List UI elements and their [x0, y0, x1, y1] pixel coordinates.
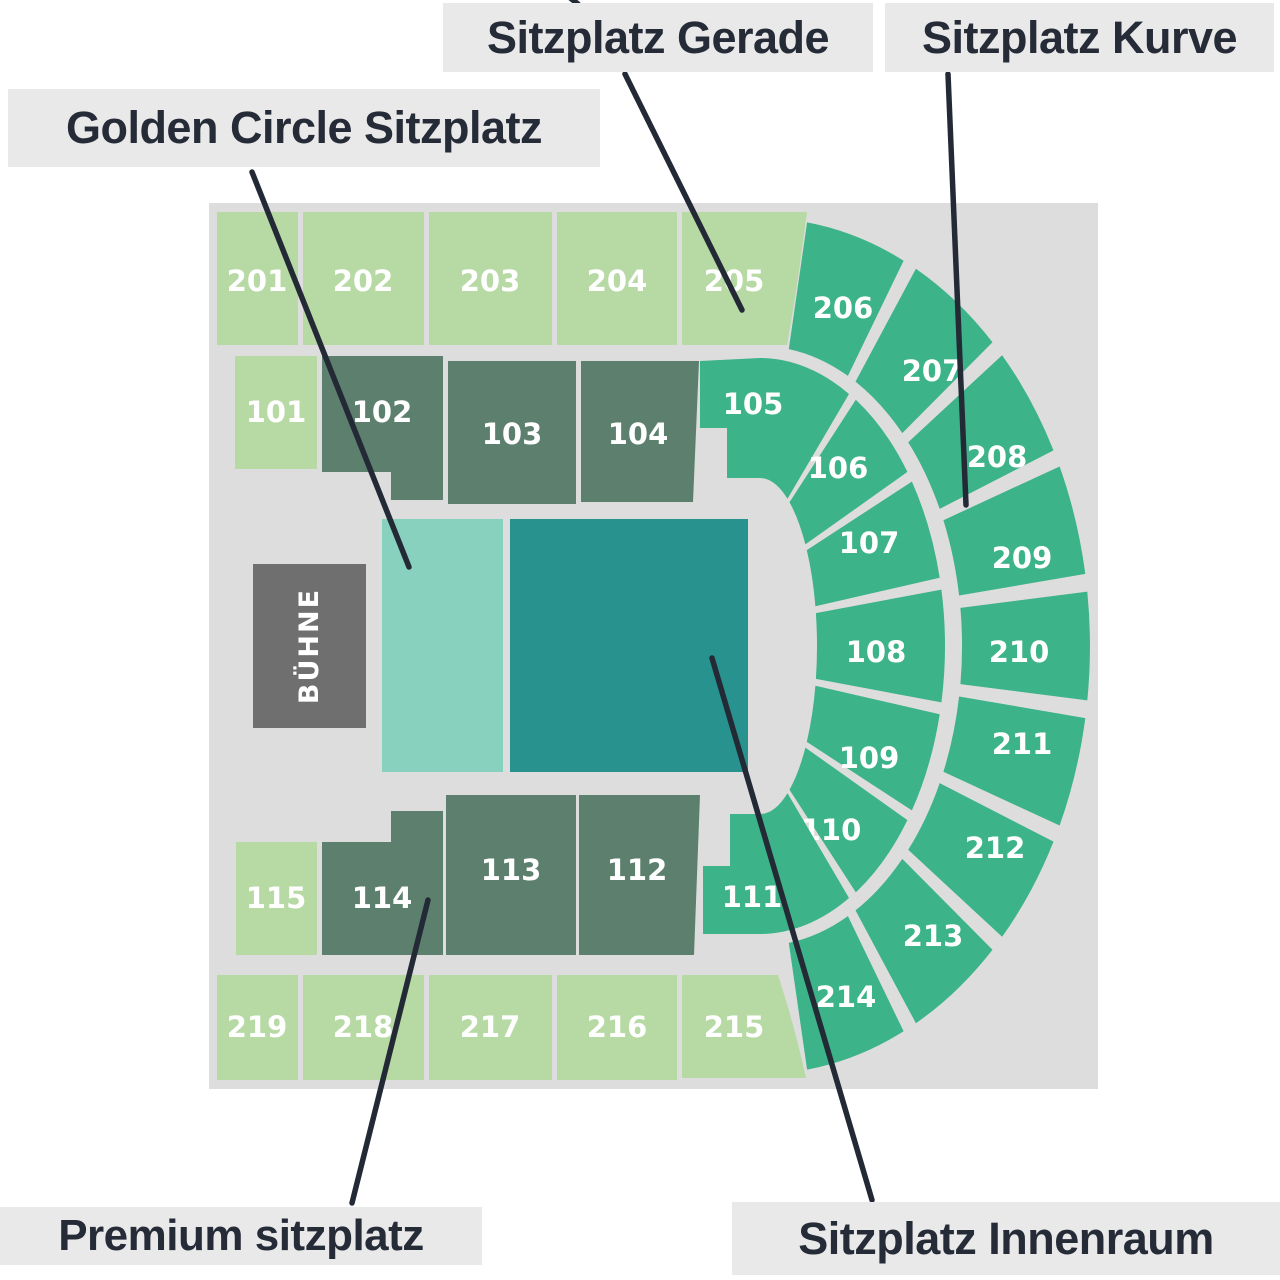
section-113-label: 113 — [481, 853, 542, 887]
section-209-label: 209 — [992, 541, 1053, 575]
section-103-label: 103 — [482, 417, 543, 451]
section-214-label: 214 — [816, 980, 877, 1014]
section-215-label: 215 — [704, 1010, 765, 1044]
stage-layer: BÜHNE — [253, 564, 366, 728]
section-206-label: 206 — [813, 291, 874, 325]
venue-map: 2012022032042052062072082092102112122132… — [0, 0, 1280, 1280]
section-202-label: 202 — [333, 264, 394, 298]
section-208-label: 208 — [967, 440, 1028, 474]
section-108-label: 108 — [846, 635, 907, 669]
section-219-label: 219 — [227, 1010, 288, 1044]
section-211-label: 211 — [992, 727, 1053, 761]
section-218-label: 218 — [333, 1010, 394, 1044]
section-106-label: 106 — [808, 451, 869, 485]
section-109-label: 109 — [839, 741, 900, 775]
section-204-label: 204 — [587, 264, 648, 298]
section-102-label: 102 — [352, 395, 413, 429]
section-201-label: 201 — [227, 264, 288, 298]
section-107-label: 107 — [839, 526, 900, 560]
section-104-label: 104 — [608, 417, 669, 451]
section-105-label: 105 — [723, 387, 784, 421]
section-innenraum[interactable] — [510, 519, 748, 772]
legend-label-premium: Premium sitzplatz — [0, 1207, 482, 1265]
section-114-label: 114 — [352, 881, 413, 915]
stage-label: BÜHNE — [292, 588, 325, 704]
legend-label-innenraum: Sitzplatz Innenraum — [732, 1202, 1280, 1275]
section-101-label: 101 — [246, 395, 307, 429]
legend-label-kurve: Sitzplatz Kurve — [885, 3, 1274, 72]
section-111-label: 111 — [722, 880, 783, 914]
section-212-label: 212 — [965, 831, 1026, 865]
section-210-label: 210 — [989, 635, 1050, 669]
section-213-label: 213 — [903, 919, 964, 953]
section-115-label: 115 — [246, 881, 307, 915]
section-203-label: 203 — [460, 264, 521, 298]
legend-label-gerade: Sitzplatz Gerade — [443, 3, 873, 72]
section-112-label: 112 — [607, 853, 668, 887]
seating-chart-page: 2012022032042052062072082092102112122132… — [0, 0, 1280, 1280]
legend-label-golden-circle: Golden Circle Sitzplatz — [8, 89, 600, 167]
section-golden_circle[interactable] — [382, 519, 503, 772]
section-217-label: 217 — [460, 1010, 521, 1044]
section-207-label: 207 — [902, 354, 963, 388]
section-216-label: 216 — [587, 1010, 648, 1044]
